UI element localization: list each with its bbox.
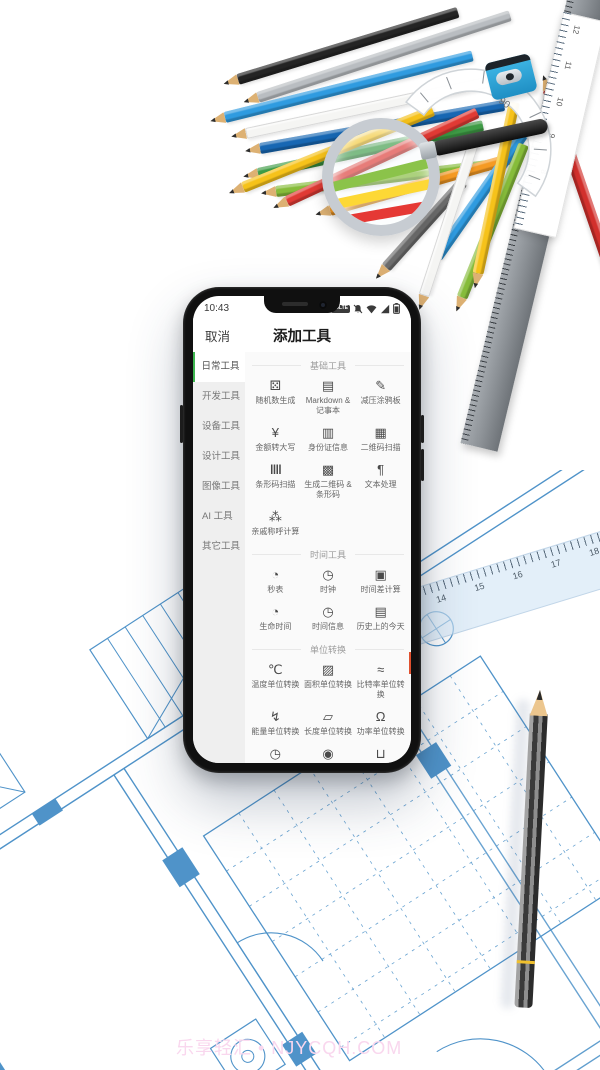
stopwatch-icon: ◔: [271, 604, 279, 620]
pencil-silver: [256, 10, 511, 102]
tool-label: 条形码扫描: [255, 480, 295, 490]
status-time: 10:43: [204, 303, 229, 314]
app-bar: 取消 添加工具: [193, 318, 411, 352]
section-title: 时间工具: [310, 548, 346, 561]
tool-label: Markdown & 记事本: [303, 396, 354, 416]
battery-icon: [393, 303, 400, 314]
tool-label: 长度单位转换: [304, 727, 352, 737]
tool-label: 时间差计算: [361, 585, 401, 595]
sidebar-item-4[interactable]: 设计工具: [193, 442, 245, 472]
tool-item[interactable]: ▣时间差计算: [354, 562, 407, 599]
watermark-text: 乐享轻汇 • NJYCQH.COM: [176, 1034, 402, 1060]
tool-item[interactable]: ▥身份证信息: [302, 420, 355, 457]
metal-ruler: [460, 0, 600, 452]
power-icon: Ω: [376, 709, 386, 725]
tool-label: 金额转大写: [255, 443, 295, 453]
mute-bell-icon: [353, 304, 363, 314]
front-camera: [319, 301, 327, 309]
protractor: 90: [371, 0, 600, 239]
pencil-black: [236, 7, 459, 85]
tool-label: 减压涂鸦板: [361, 396, 401, 406]
tool-grid: ◔秒表◷时钟▣时间差计算◔生命时间◷时间信息▤历史上的今天: [249, 562, 407, 636]
tool-label: 秒表: [267, 585, 283, 595]
barcode-icon: ‖‖: [270, 462, 281, 478]
energy-icon: ↯: [270, 709, 281, 725]
pencil-blue-down: [432, 131, 527, 260]
tool-item[interactable]: ▤Markdown & 记事本: [302, 373, 355, 420]
qrcode-generate-icon: ▩: [322, 462, 334, 478]
clock-icon: ◷: [322, 567, 333, 583]
power-button: [421, 415, 424, 443]
phone-mockup: 10:43 VoLTE: [183, 287, 421, 773]
wifi-icon: [366, 304, 377, 314]
pencil-red-down: [500, 101, 579, 303]
tool-label: 随机数生成: [255, 396, 295, 406]
calendar-icon: ▣: [375, 567, 387, 583]
tool-item[interactable]: ◷时钟: [302, 562, 355, 599]
tool-panel: 基础工具⚄随机数生成▤Markdown & 记事本✎减压涂鸦板¥金额转大写▥身份…: [245, 352, 411, 763]
tool-item[interactable]: ◷时间单位转换: [249, 741, 302, 763]
tool-label: 文本处理: [365, 480, 397, 490]
pencil-white-down: [419, 142, 479, 298]
sidebar-item-label: 设计工具: [202, 451, 240, 462]
tool-item[interactable]: ◔秒表: [249, 562, 302, 599]
tool-item[interactable]: ◔生命时间: [249, 599, 302, 636]
pencil-red: [285, 108, 480, 207]
phone-screen: 10:43 VoLTE: [193, 296, 411, 763]
pencil-sharpener: [484, 53, 538, 101]
tool-item[interactable]: ≈比特率单位转换: [354, 657, 407, 704]
tool-item[interactable]: ⊔体积单位转换: [354, 741, 407, 763]
tool-label: 面积单位转换: [304, 680, 352, 690]
sidebar-item-1[interactable]: 日常工具: [193, 352, 245, 382]
tool-label: 功率单位转换: [357, 727, 405, 737]
tool-label: 生成二维码 & 条形码: [303, 480, 354, 500]
history-book-icon: ▤: [375, 604, 387, 620]
tool-item[interactable]: ▨面积单位转换: [302, 657, 355, 704]
section-header: 单位转换: [252, 643, 404, 656]
speed-icon: ◉: [322, 746, 333, 762]
tool-item[interactable]: ℃温度单位转换: [249, 657, 302, 704]
sidebar-item-label: 开发工具: [202, 391, 240, 402]
palette-icon: ✎: [375, 378, 386, 394]
tool-item[interactable]: ▤历史上的今天: [354, 599, 407, 636]
sidebar-item-5[interactable]: 图像工具: [193, 472, 245, 502]
section-title: 基础工具: [310, 359, 346, 372]
tool-item[interactable]: ✎减压涂鸦板: [354, 373, 407, 420]
sidebar-item-label: 设备工具: [202, 421, 240, 432]
protractor-label: 90: [496, 96, 512, 112]
sidebar-item-label: 图像工具: [202, 481, 240, 492]
tool-item[interactable]: ▱长度单位转换: [302, 704, 355, 741]
tool-grid: ℃温度单位转换▨面积单位转换≈比特率单位转换↯能量单位转换▱长度单位转换Ω功率单…: [249, 657, 407, 763]
sidebar-item-2[interactable]: 开发工具: [193, 382, 245, 412]
clock-icon: ◷: [322, 604, 333, 620]
bitrate-icon: ≈: [377, 662, 384, 678]
tool-item[interactable]: ▩生成二维码 & 条形码: [302, 457, 355, 504]
scrollbar-thumb[interactable]: [409, 652, 412, 674]
pencil-darkblue: [259, 100, 505, 154]
tool-item[interactable]: Ω功率单位转换: [354, 704, 407, 741]
sidebar-item-6[interactable]: AI 工具: [193, 502, 245, 532]
section-title: 单位转换: [310, 643, 346, 656]
tool-label: 温度单位转换: [251, 680, 299, 690]
tool-label: 比特率单位转换: [355, 680, 406, 700]
pencil-yellow-down: [473, 101, 520, 274]
pencil-red-long: [543, 88, 600, 347]
sidebar: 日常工具开发工具设备工具设计工具图像工具AI 工具其它工具: [193, 352, 245, 763]
white-ruler: 12111098: [514, 12, 600, 238]
tool-item[interactable]: ⚄随机数生成: [249, 373, 302, 420]
tool-item[interactable]: ¶文本处理: [354, 457, 407, 504]
sidebar-item-label: 其它工具: [202, 541, 240, 552]
notch: [264, 296, 340, 313]
tool-label: 生命时间: [259, 622, 291, 632]
family-tree-icon: ⁂: [269, 509, 282, 525]
text-doc-icon: ¶: [377, 462, 384, 478]
temperature-icon: ℃: [268, 662, 283, 678]
page-title: 添加工具: [193, 325, 411, 346]
pencil-blue: [224, 50, 474, 122]
tool-item[interactable]: ¥金额转大写: [249, 420, 302, 457]
speaker-grill: [282, 302, 308, 306]
pencil-orange: [328, 153, 514, 216]
pencil-yellow: [241, 106, 435, 193]
tool-item[interactable]: ◷时间信息: [302, 599, 355, 636]
tool-label: 历史上的今天: [357, 622, 405, 632]
magnifier-lens: [322, 118, 440, 236]
stopwatch-icon: ◔: [271, 567, 279, 583]
section-header: 基础工具: [252, 359, 404, 372]
tool-label: 时钟: [320, 585, 336, 595]
tool-item[interactable]: ▦二维码扫描: [354, 420, 407, 457]
tool-item[interactable]: ◉速度单位转换: [302, 741, 355, 763]
ruler-ticks: [514, 12, 572, 230]
yuan-icon: ¥: [272, 425, 279, 441]
volume-button: [421, 449, 424, 481]
pencil-green: [257, 120, 484, 179]
tool-item[interactable]: ⁂亲戚称呼计算: [249, 504, 302, 541]
tool-label: 二维码扫描: [361, 443, 401, 453]
length-icon: ▱: [323, 709, 333, 725]
tool-label: 时间信息: [312, 622, 344, 632]
pencil-lightgreen: [275, 160, 490, 197]
mute-slider: [180, 405, 183, 443]
pencil-graphite-down: [382, 178, 467, 271]
dice-icon: ⚄: [270, 378, 281, 394]
time-unit-icon: ◷: [270, 746, 281, 762]
tool-item[interactable]: ↯能量单位转换: [249, 704, 302, 741]
tool-label: 身份证信息: [308, 443, 348, 453]
tool-grid: ⚄随机数生成▤Markdown & 记事本✎减压涂鸦板¥金额转大写▥身份证信息▦…: [249, 373, 407, 541]
section-header: 时间工具: [252, 548, 404, 561]
area-icon: ▨: [322, 662, 334, 678]
magnifier-handle: [430, 118, 549, 157]
signal-icon: [380, 304, 390, 314]
tool-item[interactable]: ‖‖条形码扫描: [249, 457, 302, 504]
tool-label: 能量单位转换: [251, 727, 299, 737]
sidebar-item-label: AI 工具: [202, 511, 233, 522]
id-card-icon: ▥: [322, 425, 334, 441]
notebook-icon: ▤: [322, 378, 334, 394]
sidebar-item-label: 日常工具: [202, 361, 240, 372]
pencil-lightgreen-down: [457, 142, 529, 299]
ruler-numbers: 12111098: [538, 24, 582, 179]
tool-label: 亲戚称呼计算: [251, 527, 299, 537]
sidebar-item-3[interactable]: 设备工具: [193, 412, 245, 442]
sidebar-item-7[interactable]: 其它工具: [193, 532, 245, 562]
volume-icon: ⊔: [376, 746, 386, 762]
qrcode-scan-icon: ▦: [375, 425, 387, 441]
pencil-white: [245, 76, 492, 139]
